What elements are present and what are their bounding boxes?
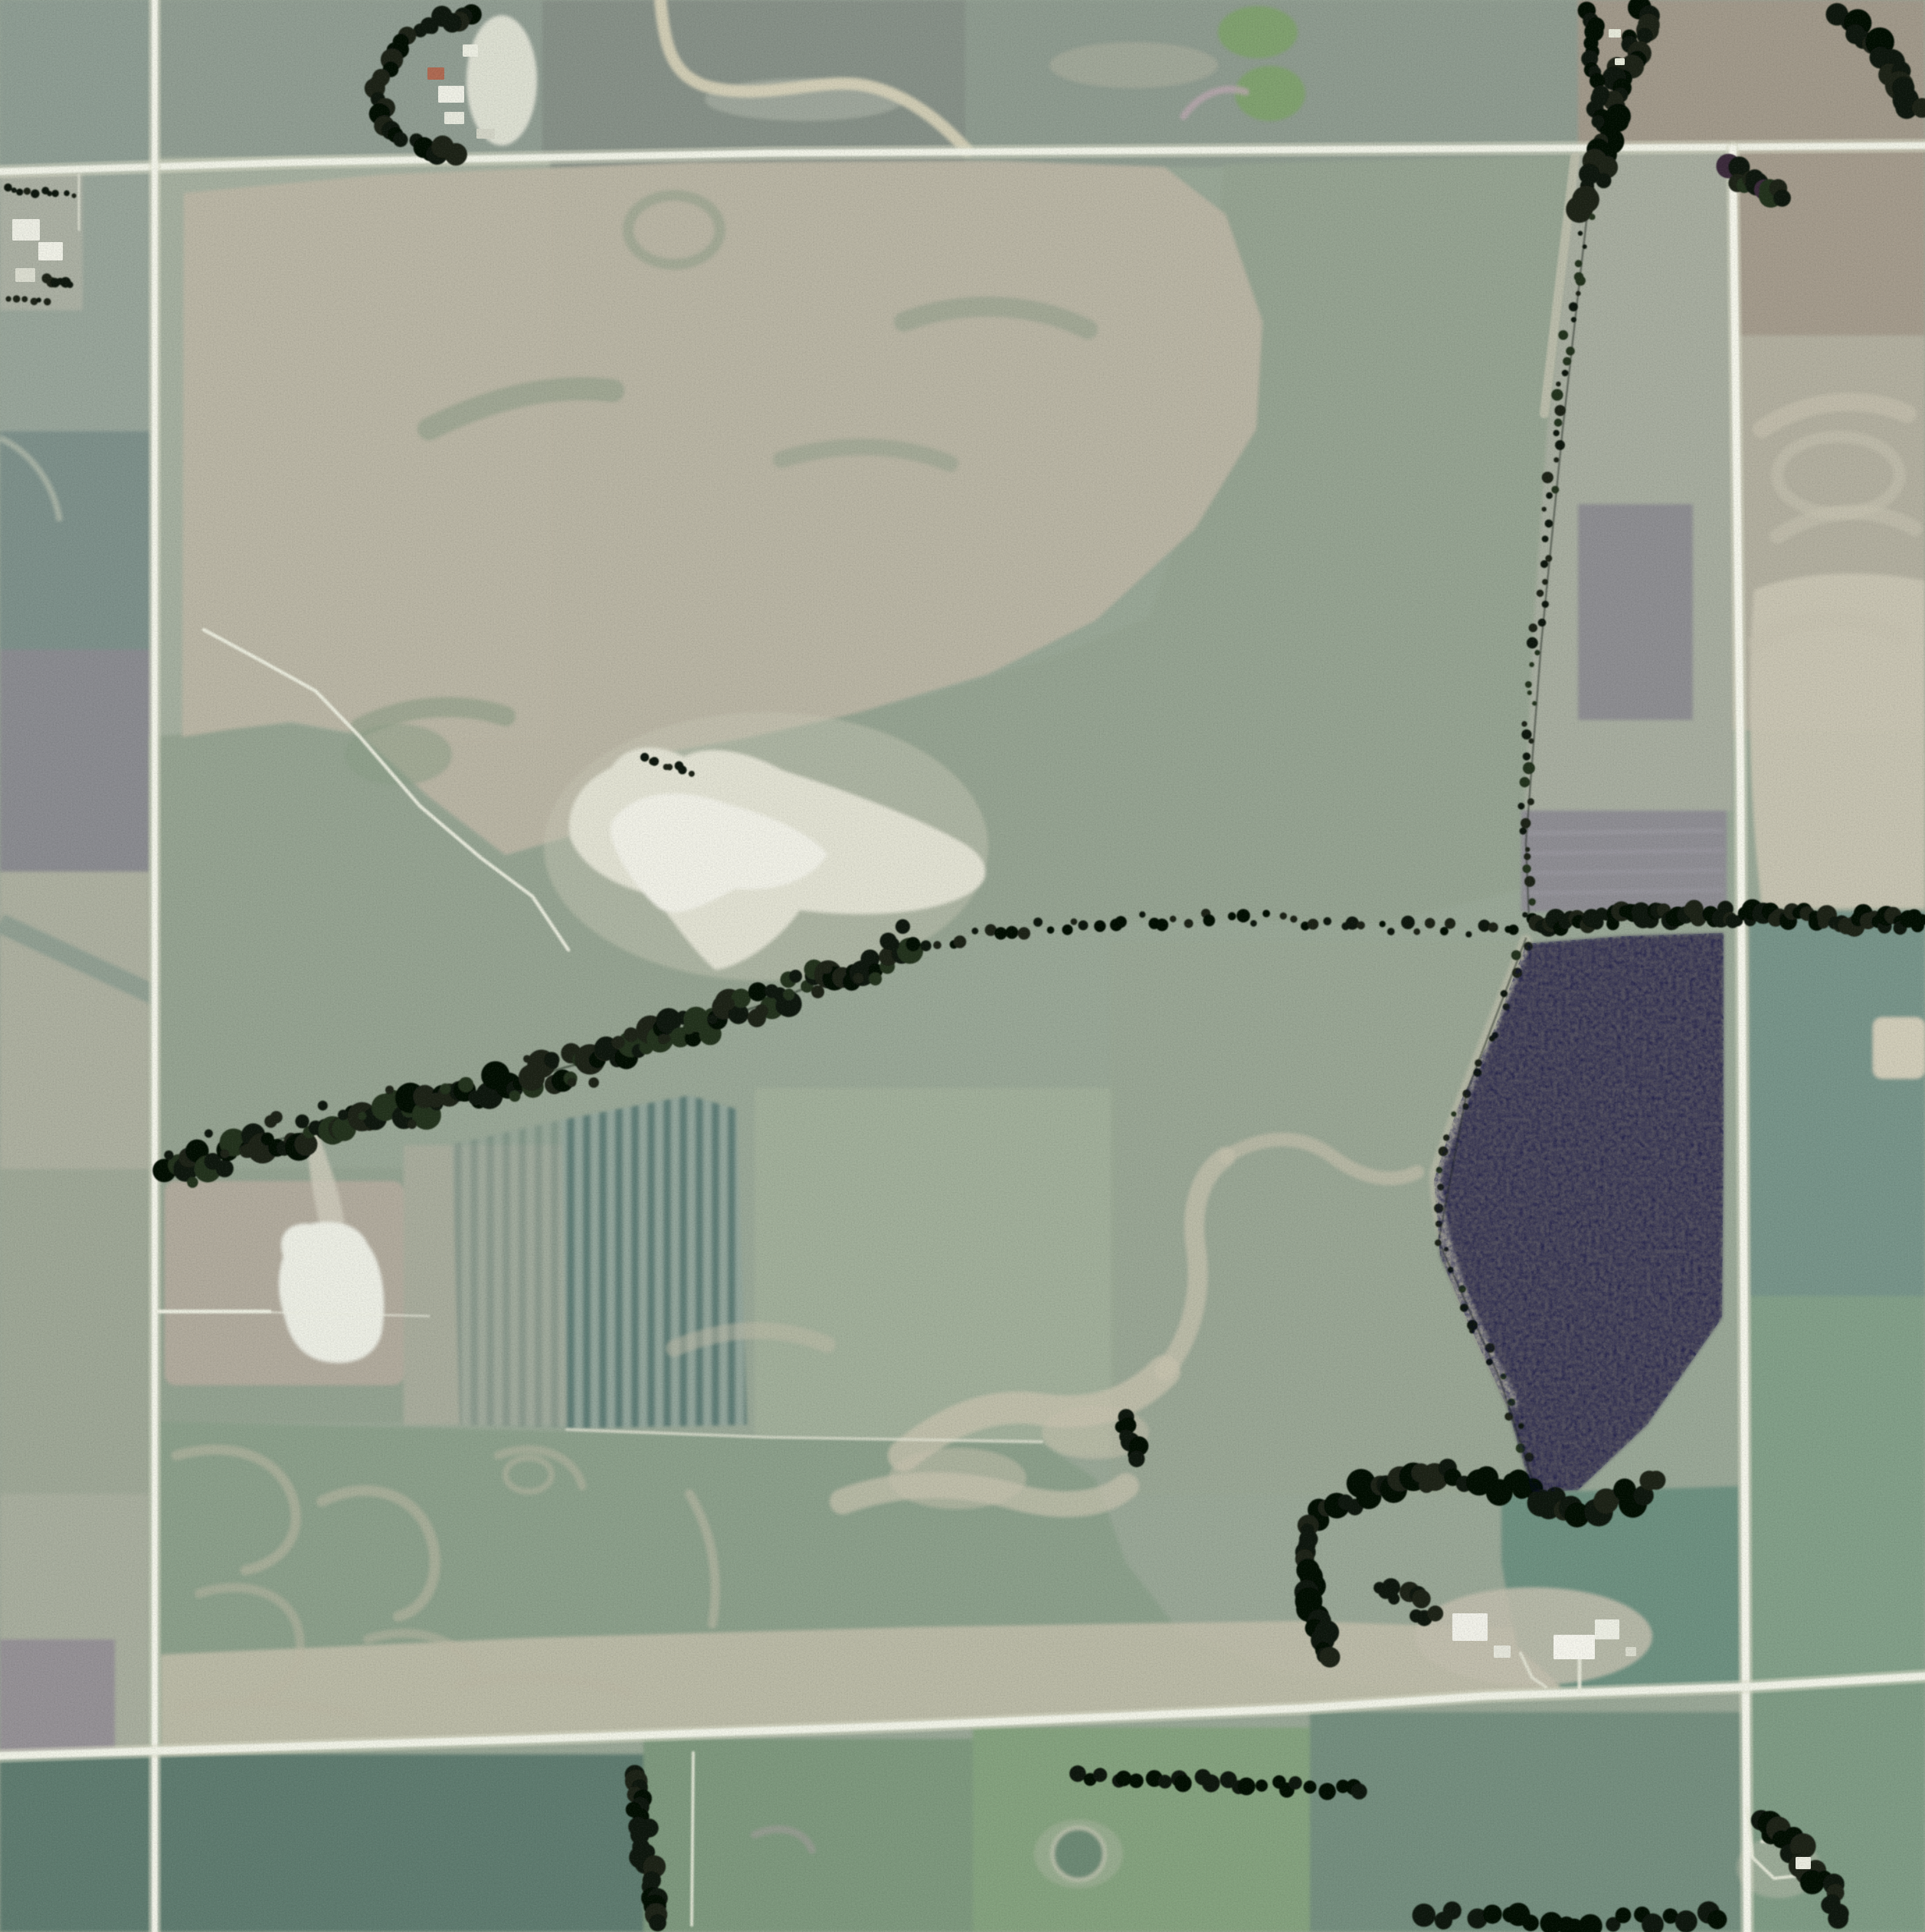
film-grain-light	[0, 0, 1925, 1932]
aerial-orthophoto	[0, 0, 1925, 1932]
aerial-photo-stage	[0, 0, 1925, 1932]
